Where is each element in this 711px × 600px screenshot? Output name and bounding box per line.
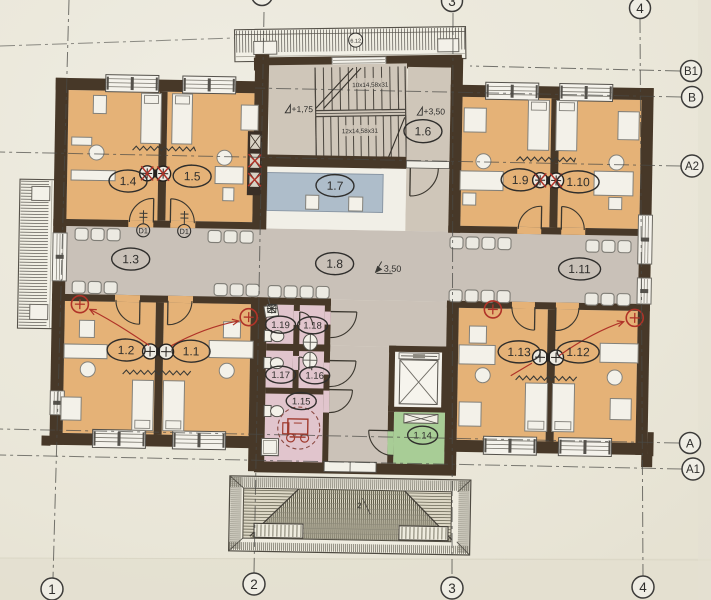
svg-text:6.12: 6.12 [350, 38, 361, 44]
svg-text:4: 4 [639, 580, 647, 595]
svg-text:1.5: 1.5 [184, 169, 201, 183]
svg-text:1.13: 1.13 [507, 345, 531, 359]
svg-text:1.10: 1.10 [566, 175, 590, 189]
svg-text:1.19: 1.19 [271, 320, 290, 331]
svg-text:2: 2 [357, 501, 362, 510]
svg-text:1.8: 1.8 [326, 257, 343, 271]
svg-text:A2: A2 [685, 161, 699, 173]
svg-text:1.6: 1.6 [414, 124, 431, 138]
svg-text:1.4: 1.4 [120, 174, 137, 188]
svg-text:A: A [686, 436, 694, 450]
svg-text:1.18: 1.18 [303, 320, 322, 331]
svg-text:1.2: 1.2 [118, 343, 135, 357]
svg-text:2: 2 [258, 0, 266, 3]
svg-text:1.9: 1.9 [512, 173, 529, 187]
svg-text:B1: B1 [684, 66, 698, 78]
svg-text:1.7: 1.7 [327, 179, 344, 193]
svg-text:+1,75: +1,75 [291, 104, 313, 114]
svg-text:1.15: 1.15 [292, 396, 311, 407]
svg-text:D1: D1 [138, 226, 148, 235]
svg-text:+3,50: +3,50 [423, 106, 445, 116]
svg-text:3: 3 [448, 581, 456, 596]
svg-text:1.3: 1.3 [122, 252, 139, 266]
svg-text:3: 3 [448, 0, 456, 9]
svg-text:1.16: 1.16 [305, 370, 324, 381]
svg-text:1.11: 1.11 [568, 262, 591, 276]
svg-text:1.1: 1.1 [183, 344, 200, 358]
svg-text:B: B [688, 90, 696, 104]
svg-text:1: 1 [48, 582, 56, 597]
svg-text:10x14,58x31: 10x14,58x31 [352, 82, 389, 90]
svg-text:D1: D1 [179, 227, 189, 236]
svg-text:3,50: 3,50 [384, 263, 402, 273]
svg-text:4: 4 [636, 1, 644, 16]
svg-text:12x14,58x31: 12x14,58x31 [342, 128, 379, 136]
svg-text:1.12: 1.12 [566, 345, 590, 359]
svg-text:1.14: 1.14 [413, 430, 432, 441]
svg-text:2: 2 [250, 577, 258, 592]
svg-text:1.17: 1.17 [271, 370, 290, 381]
svg-text:A1: A1 [686, 464, 700, 476]
